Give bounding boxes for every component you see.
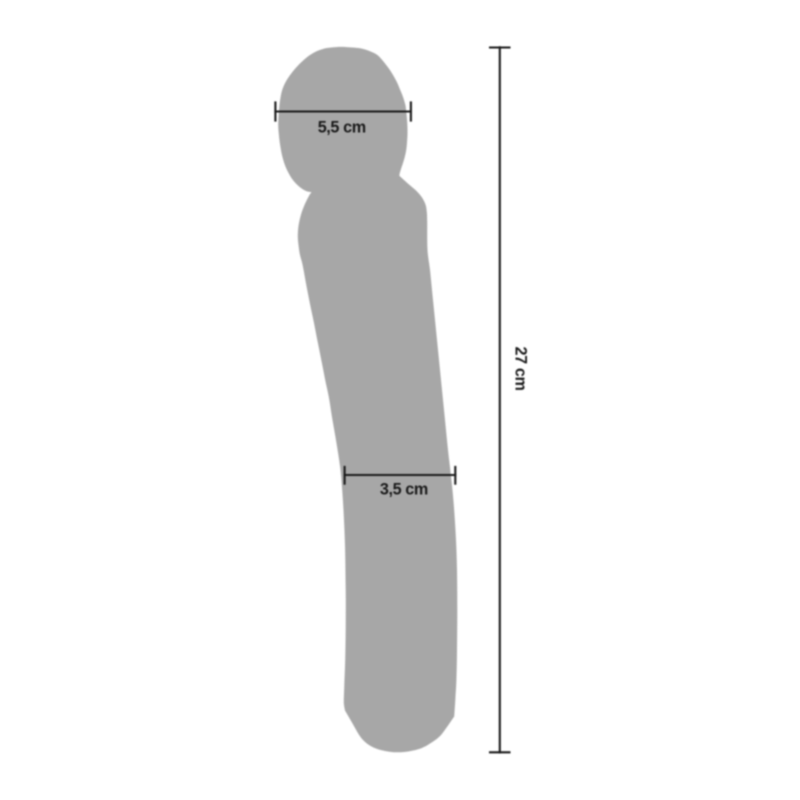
svg-text:5,5 cm: 5,5 cm [318,119,366,137]
svg-text:3,5 cm: 3,5 cm [380,480,428,498]
svg-text:27 cm: 27 cm [512,347,530,391]
